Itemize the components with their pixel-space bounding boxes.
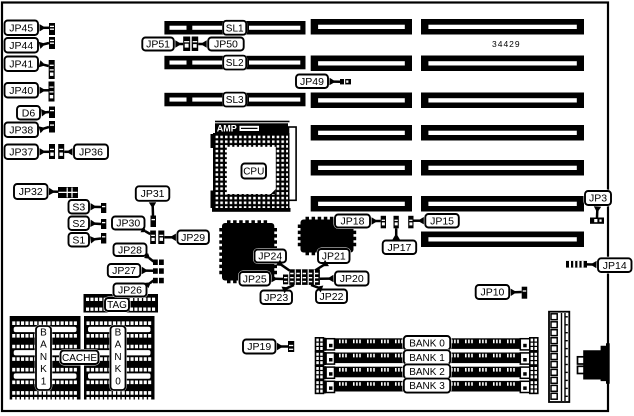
svg-text:BANK 2: BANK 2 (409, 367, 445, 378)
svg-text:JP27: JP27 (112, 265, 136, 277)
svg-text:CACHE: CACHE (62, 353, 97, 364)
svg-text:S3: S3 (72, 201, 85, 213)
svg-text:JP32: JP32 (19, 186, 43, 198)
svg-text:JP45: JP45 (9, 22, 33, 34)
svg-text:JP26: JP26 (118, 285, 142, 297)
svg-text:SL1: SL1 (226, 23, 244, 34)
svg-text:BANK 1: BANK 1 (409, 353, 445, 364)
svg-text:JP29: JP29 (181, 232, 205, 244)
svg-text:N: N (40, 352, 47, 363)
svg-text:SL2: SL2 (226, 58, 244, 69)
svg-text:SL3: SL3 (226, 95, 244, 106)
svg-text:K: K (115, 364, 122, 375)
svg-text:JP19: JP19 (247, 341, 271, 353)
svg-text:1: 1 (41, 376, 47, 387)
svg-text:TAG: TAG (107, 300, 127, 311)
svg-text:A: A (115, 340, 122, 351)
svg-text:JP28: JP28 (118, 244, 142, 256)
svg-text:JP25: JP25 (243, 273, 267, 285)
svg-text:B: B (40, 328, 47, 339)
svg-text:JP44: JP44 (9, 40, 33, 52)
svg-text:JP40: JP40 (9, 85, 33, 97)
svg-text:JP31: JP31 (141, 188, 165, 200)
svg-text:JP30: JP30 (116, 218, 140, 230)
svg-text:BANK 3: BANK 3 (409, 381, 445, 392)
svg-text:B: B (115, 328, 122, 339)
svg-text:S1: S1 (72, 234, 85, 246)
svg-text:S2: S2 (72, 218, 85, 230)
svg-text:N: N (114, 352, 121, 363)
svg-text:JP23: JP23 (264, 292, 288, 304)
svg-text:JP17: JP17 (387, 242, 411, 254)
svg-text:JP51: JP51 (146, 39, 170, 51)
svg-text:JP36: JP36 (79, 146, 103, 158)
svg-text:JP49: JP49 (300, 76, 324, 88)
svg-text:34429: 34429 (492, 39, 521, 49)
svg-text:BANK 0: BANK 0 (409, 339, 445, 350)
svg-text:JP41: JP41 (9, 58, 33, 70)
svg-text:JP15: JP15 (430, 215, 454, 227)
svg-text:CPU: CPU (243, 167, 264, 178)
svg-text:0: 0 (115, 376, 121, 387)
svg-text:JP20: JP20 (340, 273, 364, 285)
svg-text:K: K (40, 364, 47, 375)
svg-text:JP14: JP14 (603, 260, 627, 272)
svg-text:JP22: JP22 (320, 291, 344, 303)
svg-text:JP38: JP38 (9, 124, 33, 136)
svg-text:JP3: JP3 (589, 193, 607, 205)
svg-text:JP50: JP50 (214, 39, 238, 51)
svg-text:D6: D6 (22, 107, 36, 119)
svg-text:JP18: JP18 (341, 216, 365, 228)
svg-text:JP24: JP24 (258, 251, 282, 263)
svg-text:JP37: JP37 (9, 146, 33, 158)
svg-text:AMP: AMP (217, 124, 237, 134)
svg-text:A: A (40, 340, 47, 351)
svg-text:JP10: JP10 (480, 287, 504, 299)
